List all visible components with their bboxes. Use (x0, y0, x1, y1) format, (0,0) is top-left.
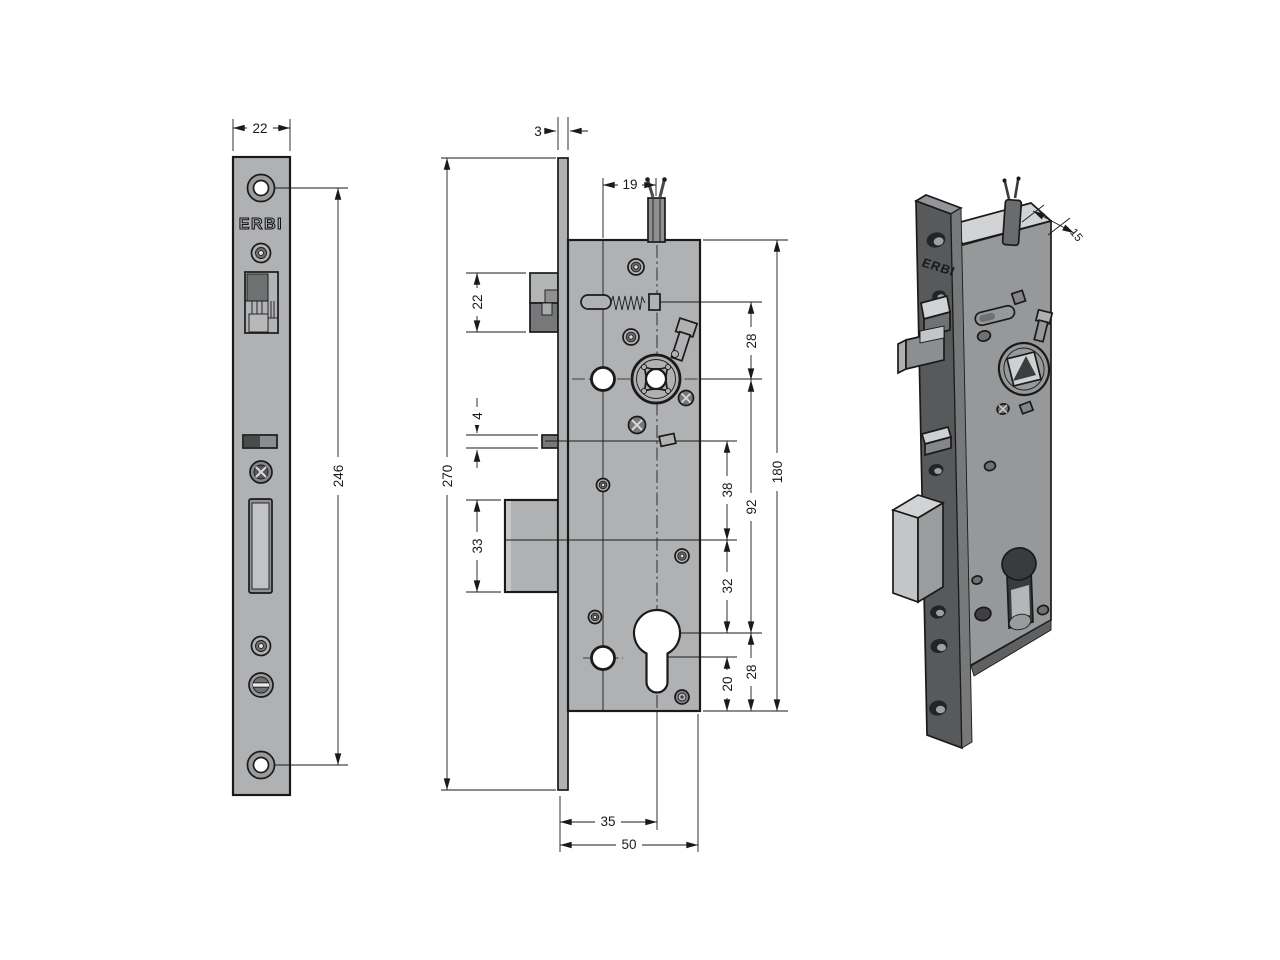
technical-drawing: 22 ERBI (0, 0, 1280, 960)
dim-label-28-bottom: 28 (744, 664, 759, 679)
iso-square-hole (1012, 290, 1026, 304)
isometric-view: 15 (893, 177, 1084, 749)
dim-label-deadbolt-height: 33 (470, 538, 485, 553)
drawing-canvas: 22 ERBI (0, 0, 1280, 960)
dim-stem-to-edge: 20 (719, 657, 735, 711)
dim-label-overall-height: 270 (440, 465, 455, 488)
latch-bolt-front (245, 272, 278, 333)
dim-label-cable-offset: 19 (622, 177, 637, 192)
deadbolt-window (249, 499, 272, 593)
dim-label-hole-spacing: 246 (331, 465, 346, 488)
dim-deadbolt-height: 33 (466, 500, 501, 592)
dim-latch-to-spindle: 28 (743, 302, 759, 380)
latch-spring-slot (581, 295, 611, 309)
pin-hole-upper (252, 244, 271, 263)
front-view: 22 ERBI (233, 119, 348, 795)
dim-label-32: 32 (720, 578, 735, 593)
ring-screw (675, 690, 689, 704)
dim-faceplate-thickness: 3 (534, 117, 588, 150)
dim-aux-to-deadbolt: 38 (719, 441, 735, 540)
dim-label-aux-bolt: 4 (470, 412, 485, 420)
aux-bolt-window (243, 435, 277, 448)
dim-label-case-depth: 50 (621, 837, 636, 852)
ring-hole-3 (597, 479, 610, 492)
mount-hole-top (248, 175, 275, 202)
slot-screw (249, 673, 273, 697)
dim-cylinder-to-edge: 28 (743, 633, 759, 711)
phillips-screw-2 (629, 417, 646, 434)
dim-spindle-to-cylinder: 92 (743, 380, 759, 633)
spindle-hub (632, 355, 680, 403)
dim-label-180: 180 (770, 461, 785, 484)
dim-overall-height: 270 (438, 158, 556, 790)
ring-hole-2 (623, 329, 639, 345)
pin-hole-lower (252, 637, 271, 656)
dim-case-depth: 50 (560, 837, 698, 852)
lock-case (568, 240, 700, 711)
side-view: 270 3 22 4 (438, 117, 788, 852)
brand-text-front: ERBI (239, 216, 283, 233)
cross-screw (250, 461, 272, 483)
deadbolt-side (505, 500, 558, 592)
dim-deadbolt-to-cylinder: 32 (719, 540, 735, 633)
dim-case-height: 180 (769, 240, 786, 711)
handle-fix-hole-bottom (592, 647, 615, 670)
ring-hole-top (628, 259, 644, 275)
dim-label-20: 20 (720, 676, 735, 691)
iso-cable (1002, 177, 1021, 246)
dim-label-faceplate-thickness: 3 (534, 124, 542, 139)
mount-hole-bottom (248, 752, 275, 779)
ring-hole-5 (589, 611, 602, 624)
dim-aux-bolt: 4 (466, 398, 538, 468)
dim-label-backset: 35 (600, 814, 615, 829)
handle-fix-hole-top (592, 368, 615, 391)
dim-label-28-top: 28 (744, 333, 759, 348)
cam-plate (659, 433, 676, 446)
dim-label-latch-height: 22 (470, 294, 485, 309)
ring-hole-4 (675, 549, 689, 563)
lever-pin (672, 351, 679, 358)
dim-label-38: 38 (720, 482, 735, 497)
aux-bolt-side (542, 435, 559, 448)
latch-bolt-side (530, 273, 558, 332)
dim-label-92: 92 (744, 499, 759, 514)
dim-latch-height: 22 (466, 273, 526, 332)
dim-backset: 35 (560, 711, 698, 852)
dim-label-faceplate-width: 22 (252, 121, 267, 136)
dim-label-case-thickness: 15 (1067, 227, 1084, 245)
iso-deadbolt (893, 495, 943, 602)
dim-faceplate-width: 22 (233, 119, 290, 151)
faceplate-side (558, 158, 568, 790)
spring-stop-square (649, 294, 660, 310)
phillips-screw-1 (679, 391, 694, 406)
